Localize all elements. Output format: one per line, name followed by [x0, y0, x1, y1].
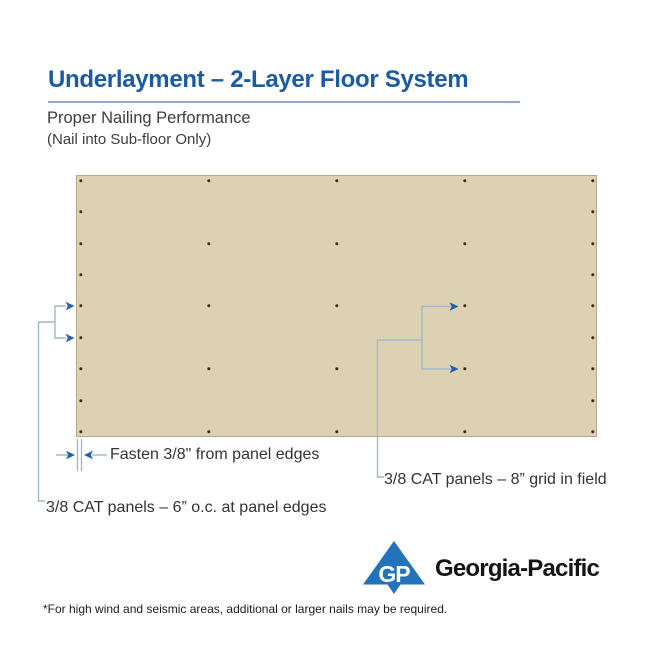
- gp-monogram: GP: [378, 561, 410, 587]
- arrow-right-icon: [66, 334, 75, 342]
- subtitle: Proper Nailing Performance: [47, 109, 251, 128]
- fasten-dimension-callout: [56, 439, 107, 471]
- gp-triangle-icon: GP: [361, 539, 427, 597]
- edge-spacing-callout: [39, 302, 75, 501]
- arrow-right-icon: [66, 451, 75, 459]
- footnote: *For high wind and seismic areas, additi…: [43, 602, 447, 616]
- edge-spacing-label: 3/8 CAT panels – 6” o.c. at panel edges: [46, 499, 326, 517]
- page-title: Underlayment – 2-Layer Floor System: [48, 66, 468, 94]
- field-grid-label: 3/8 CAT panels – 8” grid in field: [384, 471, 607, 489]
- fasten-label: Fasten 3/8" from panel edges: [110, 446, 319, 464]
- subtitle-note: (Nail into Sub-floor Only): [47, 131, 211, 148]
- arrow-right-icon: [66, 302, 75, 310]
- logo-wordmark: Georgia-Pacific: [435, 555, 599, 583]
- arrow-left-icon: [84, 451, 93, 459]
- title-underline: [48, 101, 520, 103]
- infographic-page: Underlayment – 2-Layer Floor System Prop…: [0, 0, 646, 646]
